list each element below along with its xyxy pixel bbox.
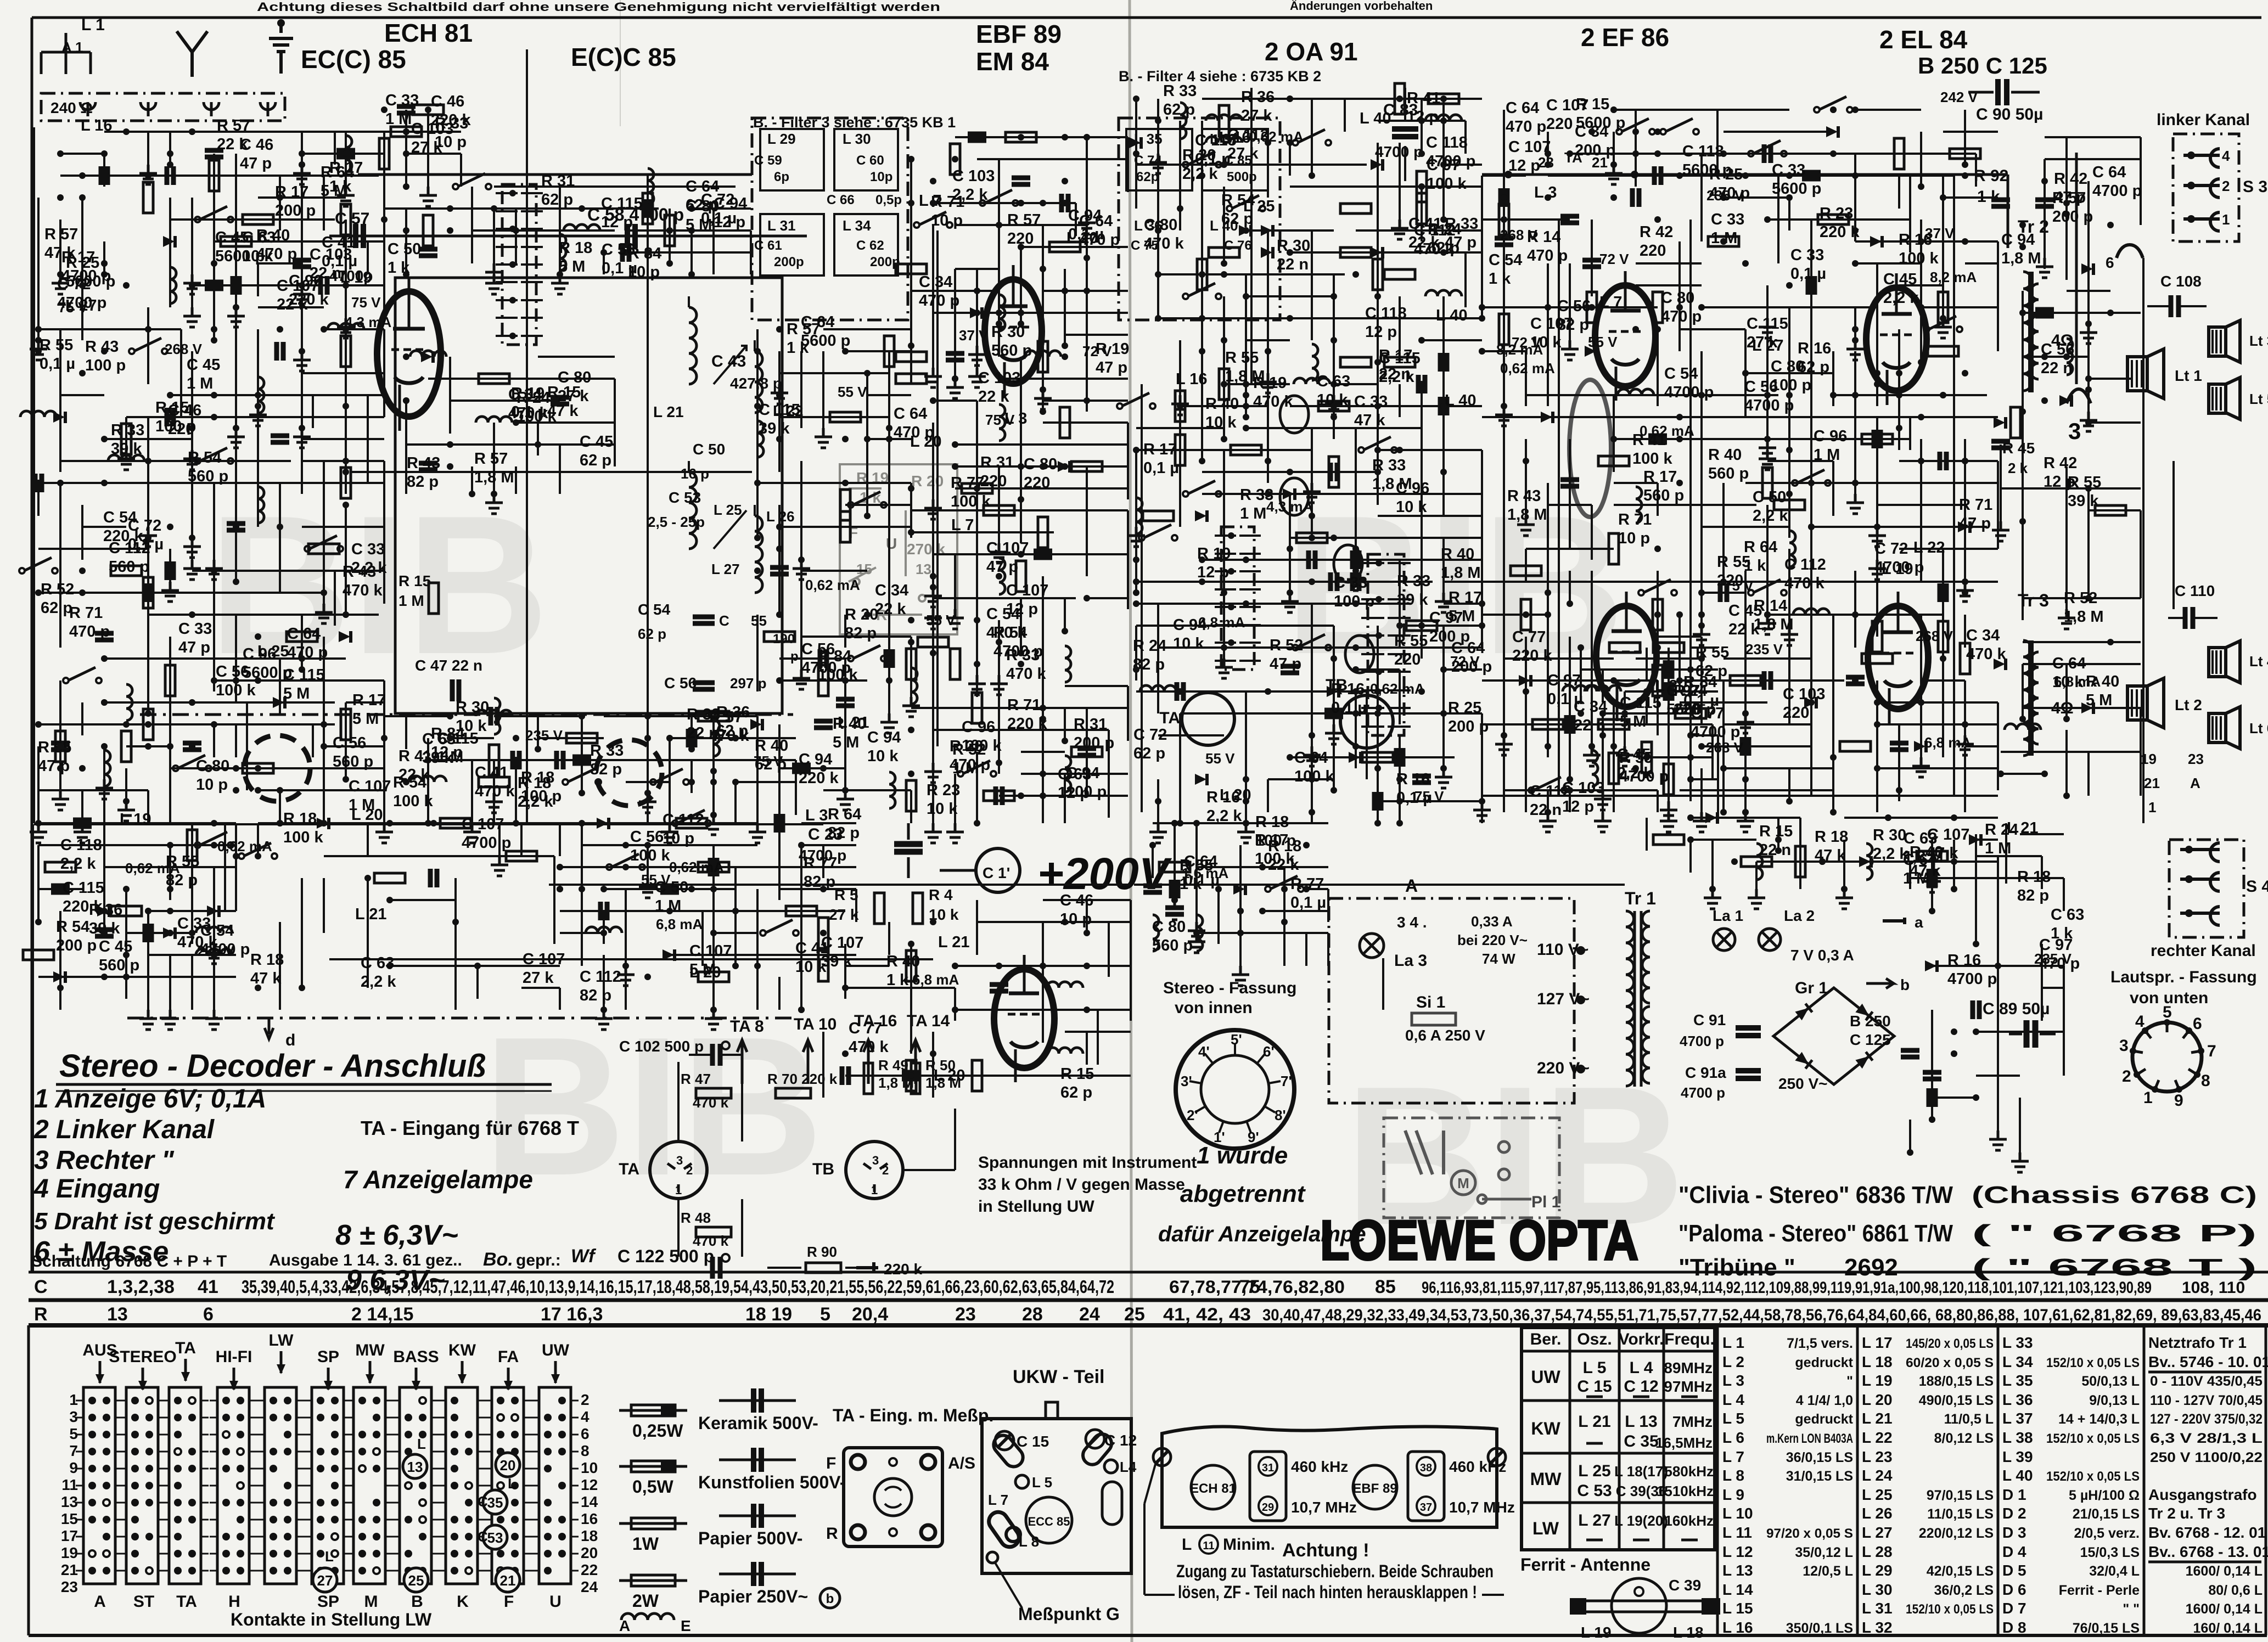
svg-text:42/0,15 LS: 42/0,15 LS: [1927, 1564, 1994, 1579]
svg-text:72 V: 72 V: [1599, 251, 1629, 267]
svg-text:470 p: 470 p: [950, 756, 990, 774]
svg-text:TA - Eing. m. Meßp.: TA - Eing. m. Meßp.: [833, 1405, 993, 1425]
svg-text:Lt 3: Lt 3: [2249, 333, 2268, 349]
svg-text:580kHz: 580kHz: [1664, 1463, 1714, 1480]
svg-text:12 p: 12 p: [1006, 600, 1038, 618]
svg-text:C 107: C 107: [462, 816, 504, 833]
svg-text:10,7 MHz: 10,7 MHz: [1449, 1499, 1515, 1516]
svg-text:55 V: 55 V: [926, 612, 956, 628]
svg-text:R: R: [34, 1304, 48, 1325]
svg-text:C 50: C 50: [388, 240, 421, 258]
svg-text:R 33: R 33: [687, 706, 720, 723]
svg-text:9/0,13 L: 9/0,13 L: [2089, 1393, 2140, 1408]
svg-text:C 35: C 35: [1624, 1432, 1658, 1450]
svg-text:4: 4: [581, 1408, 590, 1425]
svg-text:470 k: 470 k: [1006, 665, 1046, 683]
svg-text:UW: UW: [1531, 1367, 1560, 1387]
svg-text:gepr.:: gepr.:: [516, 1251, 561, 1269]
svg-text:100 p: 100 p: [1066, 783, 1107, 801]
svg-text:M: M: [1457, 1175, 1469, 1191]
svg-text:C: C: [478, 1528, 488, 1545]
svg-text:28: 28: [1022, 1304, 1043, 1325]
svg-text:Netztrafo Tr 1: Netztrafo Tr 1: [2148, 1334, 2247, 1351]
svg-text:L 19: L 19: [1581, 1624, 1612, 1641]
svg-text:E: E: [681, 1617, 691, 1634]
svg-text:TB: TB: [812, 1160, 834, 1178]
svg-text:23: 23: [61, 1578, 78, 1595]
svg-text:47 k: 47 k: [44, 244, 76, 262]
svg-text:8/0,12 LS: 8/0,12 LS: [1934, 1431, 1994, 1446]
svg-text:4700 p: 4700 p: [1744, 397, 1794, 414]
svg-text:5 M: 5 M: [283, 685, 310, 702]
svg-text:22 k: 22 k: [1408, 234, 1440, 251]
svg-text:C 63: C 63: [1904, 830, 1937, 847]
svg-text:R 20: R 20: [950, 738, 983, 755]
svg-text:100 k: 100 k: [283, 829, 323, 846]
svg-text:EC(C) 85: EC(C) 85: [301, 45, 406, 74]
svg-text:R 33: R 33: [1163, 82, 1197, 100]
svg-text:C 80: C 80: [1144, 216, 1177, 234]
svg-text:2 14,15: 2 14,15: [351, 1304, 413, 1325]
svg-text:R 57: R 57: [217, 117, 250, 134]
svg-text:560 p: 560 p: [99, 957, 139, 974]
svg-text:12 p: 12 p: [714, 213, 745, 231]
svg-text:72 V: 72 V: [1450, 653, 1480, 670]
svg-text:C 34: C 34: [919, 273, 952, 291]
svg-text:2: 2: [581, 1391, 590, 1408]
svg-text:10 p: 10 p: [931, 212, 963, 229]
svg-text:R 19: R 19: [1197, 545, 1231, 563]
svg-text:1600/ 0,14 L: 1600/ 0,14 L: [2186, 1601, 2263, 1617]
svg-text:1: 1: [675, 1183, 682, 1197]
svg-text:a: a: [1915, 914, 1923, 931]
svg-text:97/20 x 0,05 S: 97/20 x 0,05 S: [1766, 1526, 1853, 1541]
svg-text:L 15: L 15: [1722, 1600, 1753, 1617]
svg-text:5 M: 5 M: [689, 961, 716, 979]
svg-text:R 30: R 30: [1277, 237, 1310, 255]
svg-text:10 k: 10 k: [242, 248, 273, 265]
svg-text:4700 p: 4700 p: [1426, 153, 1475, 170]
svg-text:5600 p: 5600 p: [1682, 161, 1732, 179]
svg-text:20,4: 20,4: [852, 1304, 888, 1325]
svg-text:13: 13: [916, 561, 931, 577]
svg-text:A/S: A/S: [948, 1454, 975, 1472]
svg-text:C 80: C 80: [558, 369, 591, 386]
svg-text:1,8 M: 1,8 M: [1372, 475, 1412, 493]
svg-text:C 94: C 94: [2001, 231, 2035, 249]
svg-text:0,1 µ: 0,1 µ: [1290, 894, 1326, 912]
svg-text:0,62 mA: 0,62 mA: [669, 859, 724, 875]
svg-text:470 k: 470 k: [693, 1233, 729, 1249]
svg-text:235 V: 235 V: [2034, 951, 2072, 967]
svg-text:82 p: 82 p: [828, 824, 860, 842]
svg-text:C 33: C 33: [351, 541, 385, 558]
svg-text:R 40: R 40: [1441, 546, 1474, 563]
svg-text:11: 11: [1203, 1540, 1214, 1552]
svg-text:C 33: C 33: [1354, 393, 1388, 410]
svg-text:L 27: L 27: [711, 561, 740, 577]
svg-text:35/0,12 L: 35/0,12 L: [1795, 1545, 1853, 1560]
svg-text:200 p: 200 p: [2052, 208, 2093, 226]
svg-text:3: 3: [872, 1154, 879, 1167]
svg-text:220: 220: [1640, 242, 1666, 260]
svg-text:470 p: 470 p: [1527, 247, 1568, 265]
svg-text:C 72: C 72: [1133, 726, 1167, 744]
svg-text:TA: TA: [175, 1339, 196, 1357]
svg-text:470 p: 470 p: [1506, 118, 1546, 136]
svg-text:C 56: C 56: [664, 674, 697, 691]
svg-text:23: 23: [955, 1304, 976, 1325]
svg-text:22 k: 22 k: [978, 388, 1009, 406]
svg-text:C 118: C 118: [1682, 143, 1724, 160]
svg-text:Papier 500V-: Papier 500V-: [698, 1528, 802, 1548]
svg-text:R 57: R 57: [44, 226, 78, 243]
svg-text:21: 21: [61, 1561, 78, 1578]
svg-text:U: U: [549, 1593, 562, 1611]
svg-text:R 55: R 55: [1717, 553, 1750, 571]
svg-text:97MHz: 97MHz: [1664, 1378, 1713, 1395]
svg-text:D 5: D 5: [2002, 1562, 2026, 1579]
svg-text:C 54: C 54: [638, 601, 671, 618]
svg-text:R 41: R 41: [1632, 431, 1666, 449]
svg-text:SP: SP: [317, 1593, 339, 1611]
svg-text:C 64: C 64: [2092, 164, 2126, 181]
svg-text:L 19: L 19: [1862, 1372, 1893, 1389]
svg-text:L 10: L 10: [1722, 1505, 1753, 1522]
svg-text:2,2 k: 2,2 k: [1617, 764, 1653, 782]
svg-text:L 13: L 13: [1625, 1413, 1658, 1431]
svg-text:470 k: 470 k: [1784, 575, 1824, 592]
svg-text:L 7: L 7: [919, 192, 941, 210]
svg-text:C 115: C 115: [63, 879, 104, 897]
svg-text:KW: KW: [448, 1341, 476, 1359]
svg-text:C 45: C 45: [1617, 746, 1651, 763]
svg-text:R 17: R 17: [275, 183, 308, 201]
svg-text:C 112: C 112: [663, 811, 704, 829]
svg-text:R 52: R 52: [1270, 637, 1303, 654]
svg-text:235 V: 235 V: [1745, 641, 1783, 657]
svg-text:100 p: 100 p: [85, 357, 126, 374]
svg-text:Wf: Wf: [571, 1246, 597, 1267]
svg-text:37: 37: [1420, 1502, 1432, 1514]
svg-text:47 p: 47 p: [1270, 655, 1301, 673]
svg-text:L 21: L 21: [2007, 819, 2039, 837]
svg-text:39 k: 39 k: [759, 420, 790, 437]
svg-text:C 80: C 80: [1661, 289, 1694, 307]
svg-text:L 22: L 22: [1862, 1429, 1893, 1446]
svg-text:1 k: 1 k: [2051, 925, 2073, 942]
svg-text:3: 3: [676, 1154, 683, 1167]
svg-text:5 M: 5 M: [686, 216, 712, 234]
svg-text:L 21: L 21: [1862, 1410, 1893, 1427]
svg-text:C 96: C 96: [962, 718, 995, 736]
svg-text:C 118: C 118: [1365, 305, 1407, 322]
svg-text:5600 p: 5600 p: [1772, 180, 1821, 198]
svg-text:6: 6: [581, 1425, 590, 1442]
svg-text:C 15: C 15: [1017, 1433, 1049, 1450]
svg-text:1,3,2,38: 1,3,2,38: [107, 1277, 175, 1297]
svg-text:560 p: 560 p: [188, 468, 228, 485]
svg-text:C 56: C 56: [1557, 297, 1591, 315]
svg-text:Lt 5: Lt 5: [2249, 391, 2268, 407]
svg-text:470 p: 470 p: [287, 644, 328, 661]
svg-text:62 p: 62 p: [1060, 1084, 1092, 1101]
svg-text:C 12: C 12: [1624, 1377, 1658, 1396]
svg-text:C 64: C 64: [686, 178, 719, 195]
svg-text:von innen: von innen: [1175, 999, 1253, 1017]
svg-text:0,5p: 0,5p: [875, 193, 902, 207]
svg-text:L 29: L 29: [767, 131, 796, 147]
svg-text:L 7: L 7: [988, 1492, 1008, 1508]
svg-text:200 p: 200 p: [1429, 628, 1470, 645]
svg-text:C 66: C 66: [827, 193, 855, 207]
svg-text:UKW - Teil: UKW - Teil: [1013, 1367, 1104, 1387]
svg-text:C 62: C 62: [856, 238, 884, 253]
svg-text:100 k: 100 k: [1294, 768, 1334, 785]
svg-text:R 33: R 33: [1240, 486, 1273, 504]
svg-text:C 107: C 107: [277, 277, 319, 295]
svg-text:22 n: 22 n: [1277, 256, 1309, 273]
svg-text:C 63: C 63: [361, 954, 394, 972]
svg-text:152/10 x 0,05 LS: 152/10 x 0,05 LS: [2046, 1469, 2140, 1484]
svg-text:R 70 220 k: R 70 220 k: [767, 1071, 838, 1087]
svg-text:C 90 50µ: C 90 50µ: [1976, 105, 2043, 123]
svg-text:2,2 k: 2,2 k: [361, 973, 396, 991]
svg-text:L 3: L 3: [805, 807, 828, 824]
svg-text:8 ± 6,3V~: 8 ± 6,3V~: [335, 1219, 458, 1251]
svg-text:470 k: 470 k: [693, 1094, 729, 1111]
svg-text:152/10 x 0,05 LS: 152/10 x 0,05 LS: [1906, 1602, 1994, 1617]
svg-text:4700 p: 4700 p: [1947, 970, 1997, 988]
svg-text:C 115: C 115: [1747, 315, 1788, 333]
svg-text:30,40,47,48,29,32,33,49,34,53,: 30,40,47,48,29,32,33,49,34,53,73,50,36,3…: [1262, 1306, 2261, 1324]
svg-text:ECC 85: ECC 85: [1028, 1515, 1070, 1528]
svg-text:4700 p: 4700 p: [1874, 559, 1924, 576]
svg-text:6: 6: [203, 1304, 214, 1325]
svg-text:R 18: R 18: [521, 769, 554, 786]
svg-text:50/0,13 L: 50/0,13 L: [2081, 1374, 2140, 1389]
svg-text:C 53: C 53: [1577, 1482, 1612, 1500]
svg-text:bei 220 V~: bei 220 V~: [1457, 932, 1528, 948]
svg-text:12 p: 12 p: [1508, 157, 1540, 175]
svg-text:R 47: R 47: [681, 1071, 711, 1087]
svg-text:C 91a: C 91a: [1685, 1064, 1726, 1081]
svg-text:145/20 x 0,05 LS: 145/20 x 0,05 LS: [1906, 1336, 1994, 1351]
svg-text:1,8 M: 1,8 M: [2001, 250, 2041, 267]
svg-text:R 52: R 52: [2064, 589, 2097, 607]
svg-text:8: 8: [581, 1442, 590, 1459]
svg-text:LW: LW: [269, 1331, 294, 1349]
svg-text:C 63: C 63: [242, 229, 276, 246]
svg-text:Ber.: Ber.: [1530, 1330, 1562, 1348]
svg-text:62p: 62p: [1136, 170, 1159, 184]
svg-text:C 63: C 63: [2051, 906, 2084, 924]
svg-text:C 80: C 80: [1152, 918, 1186, 936]
svg-text:R 71: R 71: [1959, 496, 1992, 514]
svg-text:16,5MHz: 16,5MHz: [1655, 1435, 1713, 1451]
svg-text:4700 p: 4700 p: [993, 643, 1043, 660]
svg-text:D 7: D 7: [2002, 1600, 2026, 1617]
svg-text:C 64: C 64: [1294, 749, 1328, 767]
svg-text:L 30: L 30: [843, 131, 871, 147]
svg-text:Schaltung 6768 C + P + T: Schaltung 6768 C + P + T: [31, 1252, 227, 1270]
svg-text:220: 220: [1007, 230, 1034, 248]
svg-text:ST: ST: [133, 1593, 154, 1611]
svg-text:100 k: 100 k: [1427, 175, 1467, 193]
svg-text:5': 5': [1231, 1031, 1242, 1048]
svg-text:100 k: 100 k: [517, 408, 557, 425]
svg-text:R 57: R 57: [474, 450, 508, 468]
svg-text:Achtung !: Achtung !: [1282, 1540, 1369, 1561]
svg-text:C 112: C 112: [580, 968, 621, 986]
svg-text:10 k: 10 k: [1205, 414, 1237, 431]
svg-text:L 21: L 21: [1578, 1413, 1611, 1431]
svg-text:R 90: R 90: [807, 1244, 837, 1260]
svg-text:100 k: 100 k: [216, 682, 256, 699]
svg-text:C 72: C 72: [1874, 540, 1908, 558]
svg-text:220: 220: [1394, 651, 1421, 668]
svg-text:0,1 µ: 0,1 µ: [1143, 459, 1179, 477]
svg-text:75 V: 75 V: [351, 294, 381, 311]
svg-text:C 96: C 96: [243, 645, 276, 663]
svg-text:L 26: L 26: [1862, 1505, 1893, 1522]
svg-text:E(C)C 85: E(C)C 85: [571, 43, 676, 71]
svg-text:STEREO: STEREO: [109, 1348, 176, 1366]
svg-text:Lt 4: Lt 4: [2249, 653, 2268, 670]
svg-text:8,2 mA: 8,2 mA: [1930, 269, 1977, 285]
svg-text:R 42: R 42: [2054, 170, 2087, 188]
svg-text:TA 14: TA 14: [907, 1012, 950, 1030]
svg-text:Änderungen vorbehalten: Änderungen vorbehalten: [1290, 0, 1433, 13]
svg-text:8': 8': [1275, 1107, 1286, 1123]
svg-text:A: A: [2190, 775, 2200, 791]
svg-text:22 n: 22 n: [687, 724, 718, 742]
svg-text:268 V: 268 V: [1500, 227, 1538, 243]
svg-text:C 64: C 64: [894, 405, 927, 423]
svg-text:L 25: L 25: [1862, 1486, 1893, 1503]
svg-text:TA: TA: [619, 1160, 639, 1178]
svg-text:Minim.: Minim.: [1223, 1536, 1275, 1554]
svg-text:470 k: 470 k: [1144, 235, 1184, 252]
svg-text:2': 2': [1187, 1107, 1198, 1123]
svg-text:ECH 81: ECH 81: [1190, 1481, 1236, 1496]
svg-text:470 p: 470 p: [919, 292, 959, 310]
svg-text:( " 6768 P): ( " 6768 P): [1972, 1220, 2257, 1247]
svg-text:R 43: R 43: [407, 454, 440, 472]
svg-text:152/10 x 0,05 LS: 152/10 x 0,05 LS: [2046, 1356, 2140, 1370]
svg-text:6: 6: [2193, 1015, 2202, 1033]
svg-text:C 103: C 103: [1783, 685, 1825, 703]
svg-text:470 k: 470 k: [343, 582, 383, 599]
svg-text:1600/ 0,14 L: 1600/ 0,14 L: [2186, 1564, 2263, 1579]
svg-text:Lt 6: Lt 6: [2249, 720, 2268, 736]
svg-text:55 V: 55 V: [1205, 750, 1235, 767]
svg-text:235 V: 235 V: [1706, 187, 1744, 204]
svg-text:1: 1: [2222, 211, 2230, 228]
svg-text:1: 1: [871, 1183, 878, 1197]
svg-text:R 77: R 77: [804, 854, 837, 872]
svg-text:R 15: R 15: [1060, 1065, 1094, 1083]
svg-text:470 p: 470 p: [69, 623, 110, 640]
svg-text:L 40: L 40: [1445, 392, 1477, 409]
svg-text:R 77: R 77: [1290, 875, 1324, 893]
svg-text:82 p: 82 p: [804, 873, 835, 891]
svg-text:EBF 89: EBF 89: [976, 20, 1062, 48]
svg-text:35: 35: [487, 1494, 503, 1511]
svg-text:L 16: L 16: [1722, 1619, 1753, 1636]
svg-text:39 k: 39 k: [821, 953, 852, 970]
svg-text:C 112: C 112: [1784, 556, 1826, 573]
svg-text:7 V 0,3 A: 7 V 0,3 A: [1790, 947, 1854, 964]
svg-text:La 3: La 3: [1394, 952, 1427, 970]
svg-text:4700 p: 4700 p: [1664, 384, 1714, 401]
svg-text:5: 5: [820, 1304, 830, 1325]
svg-text:L 16: L 16: [1219, 129, 1251, 147]
svg-text:5 Draht ist geschirmt: 5 Draht ist geschirmt: [34, 1208, 276, 1235]
svg-text:R 33: R 33: [1397, 572, 1430, 590]
svg-text:C 97: C 97: [1666, 682, 1700, 700]
svg-text:C 107: C 107: [689, 942, 732, 960]
svg-text:H: H: [228, 1593, 240, 1611]
svg-text:"Paloma - Stereo" 6861 T/W: "Paloma - Stereo" 6861 T/W: [1678, 1220, 1953, 1247]
svg-text:0 - 110V 435/0,45: 0 - 110V 435/0,45: [2150, 1374, 2263, 1389]
svg-text:A: A: [94, 1593, 106, 1611]
svg-text:C 1': C 1': [983, 864, 1010, 881]
svg-text:C 46: C 46: [240, 136, 273, 154]
svg-text:7/1,5 vers.: 7/1,5 vers.: [1787, 1336, 1853, 1351]
svg-text:5 M: 5 M: [2086, 691, 2112, 709]
svg-text:B 250 C 125: B 250 C 125: [1918, 53, 2047, 78]
svg-text:100 k: 100 k: [1632, 450, 1672, 468]
svg-text:C 64: C 64: [1079, 212, 1113, 230]
svg-text:3: 3: [2119, 1037, 2129, 1055]
svg-text:C 54: C 54: [1664, 365, 1698, 383]
svg-text:16: 16: [581, 1510, 598, 1527]
svg-text:20: 20: [500, 1457, 516, 1474]
svg-text:C 15: C 15: [1577, 1377, 1612, 1396]
svg-text:R 31: R 31: [980, 454, 1014, 471]
svg-text:23: 23: [2188, 751, 2204, 767]
svg-text:12: 12: [581, 1476, 598, 1493]
svg-text:4 Eingang: 4 Eingang: [33, 1174, 160, 1204]
svg-text:1,8 M: 1,8 M: [2064, 608, 2104, 626]
svg-text:Bv. 6768 - 12. 01: Bv. 6768 - 12. 01: [2148, 1524, 2266, 1541]
svg-text:560 p: 560 p: [991, 342, 1032, 359]
svg-text:27 k: 27 k: [523, 969, 554, 987]
svg-text:R: R: [826, 1525, 838, 1543]
svg-text:47 p: 47 p: [1096, 359, 1127, 376]
svg-text:R 52: R 52: [41, 581, 74, 598]
svg-text:31/0,15 LS: 31/0,15 LS: [1786, 1469, 1853, 1484]
svg-text:2,2 k: 2,2 k: [351, 559, 387, 577]
svg-text:R 4: R 4: [929, 886, 953, 903]
svg-text:C 63: C 63: [1317, 373, 1350, 390]
svg-text:C 107: C 107: [523, 951, 565, 968]
svg-text:55 V: 55 V: [1588, 334, 1618, 350]
svg-text:C 45: C 45: [187, 356, 220, 374]
svg-text:100 p: 100 p: [1255, 832, 1296, 850]
svg-text:R 18: R 18: [283, 810, 317, 828]
svg-text:L 30: L 30: [1862, 1581, 1893, 1598]
svg-text:82 p: 82 p: [845, 625, 877, 642]
svg-text:C 33: C 33: [178, 620, 212, 638]
svg-text:linker Kanal: linker Kanal: [2157, 111, 2250, 129]
svg-text:82 p: 82 p: [2017, 887, 2049, 904]
svg-text:62 p: 62 p: [41, 599, 72, 617]
svg-text:L 20: L 20: [1862, 1391, 1893, 1408]
svg-text:C 54: C 54: [1489, 251, 1522, 269]
svg-text:560 p: 560 p: [1708, 465, 1749, 482]
